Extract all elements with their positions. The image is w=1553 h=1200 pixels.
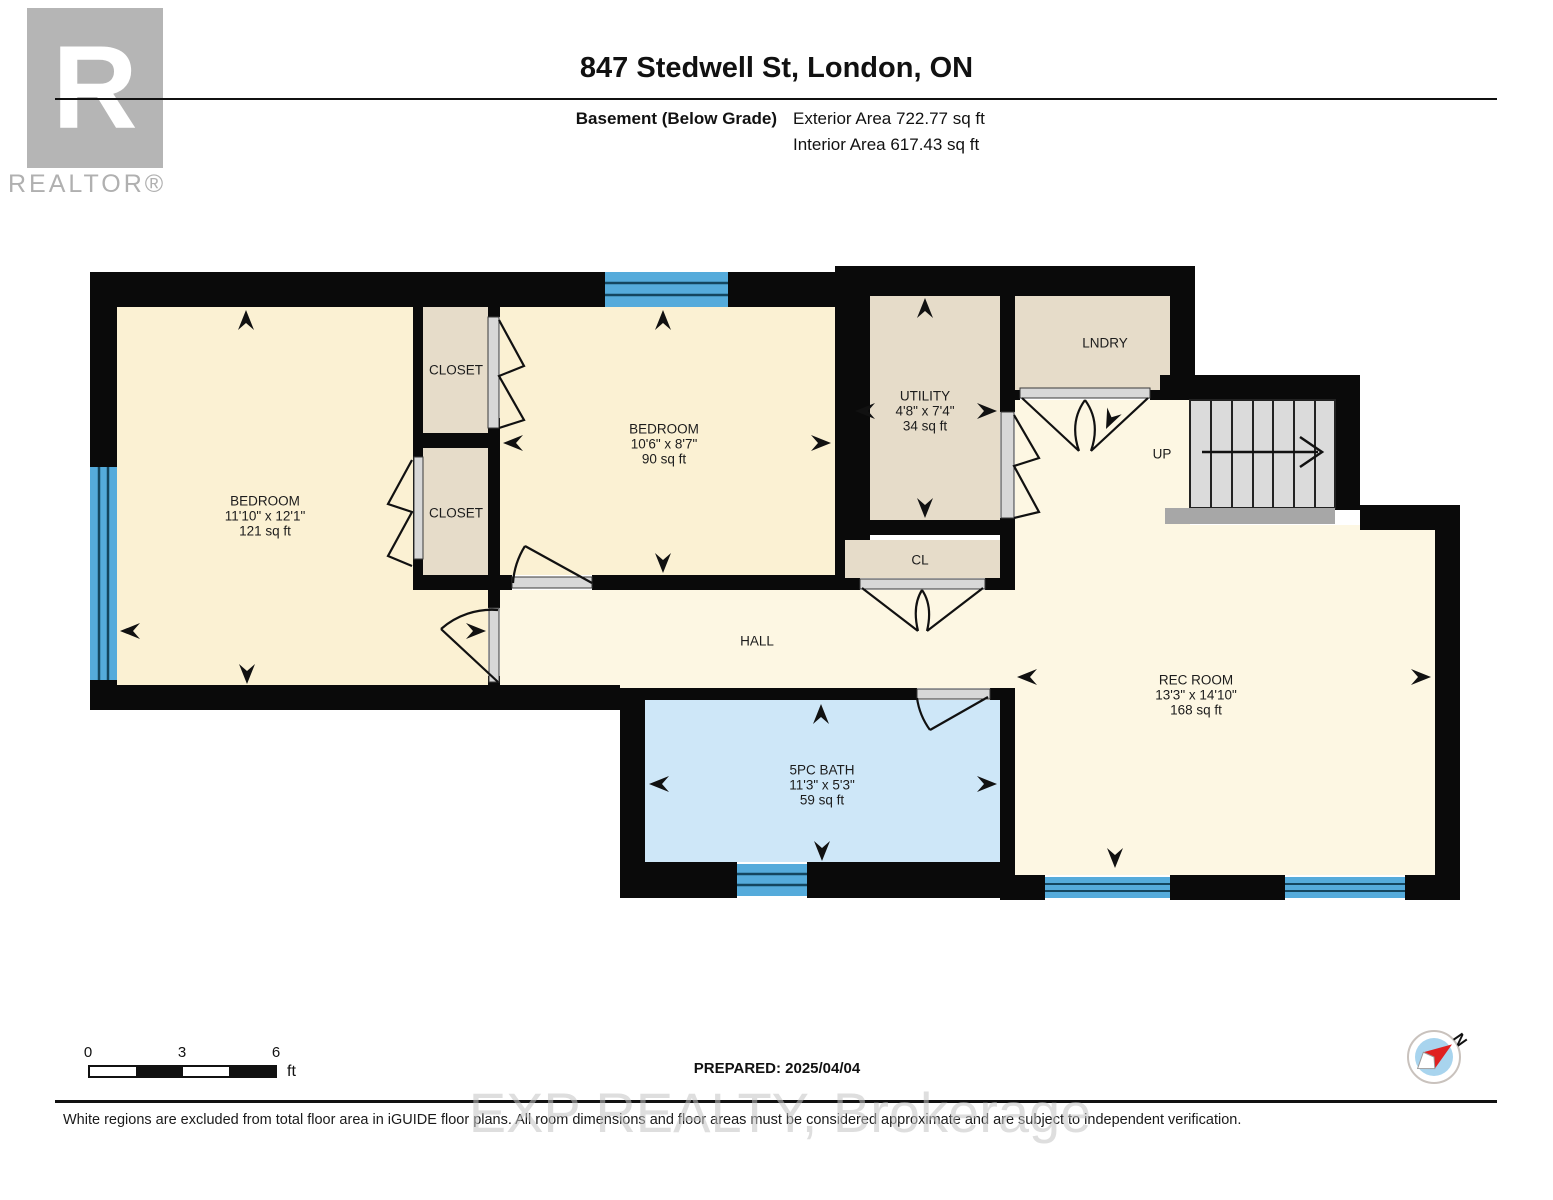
room-label-laundry: LNDRY [1082,336,1128,351]
window-left-bedroom [90,467,117,680]
room-label-bath: 5PC BATH 11'3" x 5'3" 59 sq ft [789,763,855,808]
window-bedroom2-top [605,272,728,307]
prepared-date: PREPARED: 2025/04/04 [600,1060,954,1077]
scale-unit-label: ft [287,1063,296,1081]
scale-segment [90,1067,136,1076]
scale-tick-3: 3 [170,1044,194,1061]
room-label-bedroom1: BEDROOM 11'10" x 12'1" 121 sq ft [225,494,306,539]
scale-bar [88,1065,277,1078]
room-label-bedroom2: BEDROOM 10'6" x 8'7" 90 sq ft [629,422,699,467]
room-label-rec-room: REC ROOM 13'3" x 14'10" 168 sq ft [1155,673,1237,718]
window-bath [737,864,807,896]
scale-tick-0: 0 [76,1044,100,1061]
brokerage-watermark: EXP REALTY, Brokerage [390,1080,1170,1145]
room-label-up: UP [1153,447,1172,462]
window-rec-left [1045,877,1170,898]
stairs-landing-bar [1165,508,1335,524]
floor-plan-page: R REALTOR® 847 Stedwell St, London, ON B… [0,0,1553,1200]
scale-segment [136,1067,182,1076]
stairs [1165,400,1335,524]
floor-plan-drawing [0,0,1553,1200]
room-label-cl: CL [911,553,928,568]
scale-segment [183,1067,229,1076]
room-label-hall: HALL [740,634,774,649]
compass-icon: N [1396,1019,1472,1095]
room-label-closet2: CLOSET [429,506,483,521]
scale-segment [229,1067,275,1076]
room-label-utility: UTILITY 4'8" x 7'4" 34 sq ft [895,389,954,434]
room-label-closet1: CLOSET [429,363,483,378]
window-rec-right [1285,877,1405,898]
scale-tick-6: 6 [264,1044,288,1061]
